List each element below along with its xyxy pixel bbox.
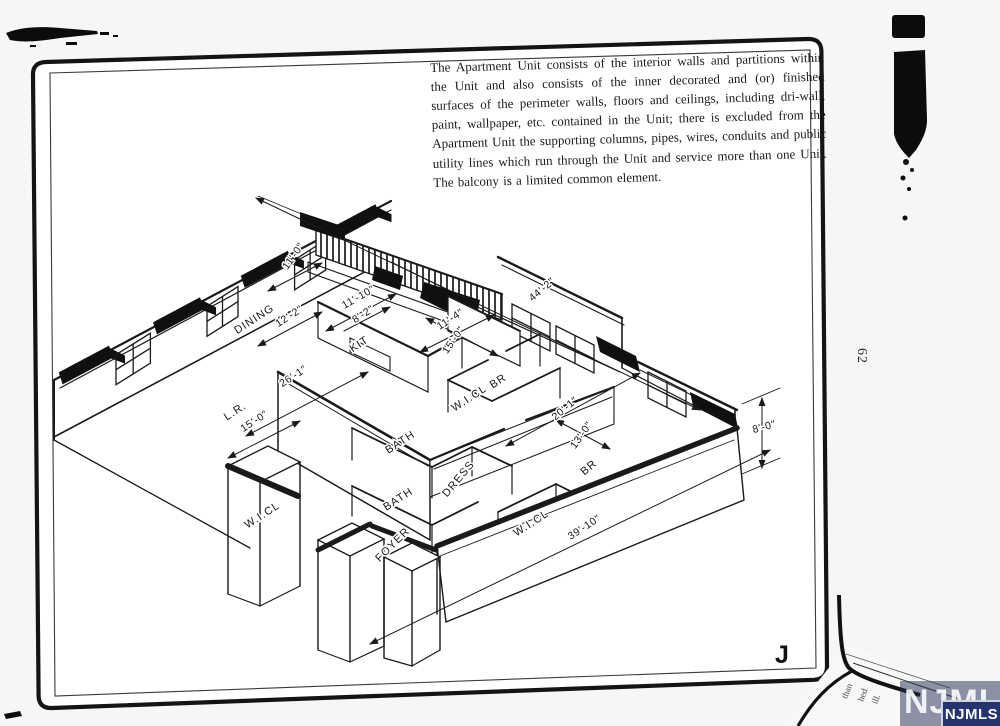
njmls-badge-text: NJMLS bbox=[945, 706, 998, 723]
figure-label: J bbox=[775, 641, 789, 669]
page-number: 62 bbox=[853, 348, 869, 364]
scan-smudge-top-left bbox=[6, 27, 118, 47]
scanned-page: DINING KIT L.R. BR W.I.CL BATH BATH DRES… bbox=[0, 0, 1000, 726]
description-paragraph: The Apartment Unit consists of the inter… bbox=[430, 48, 827, 192]
njmls-badge: NJMLS bbox=[941, 700, 1000, 726]
scan-smudge-right-edge bbox=[892, 15, 927, 221]
scan-smudge-bottom-left bbox=[4, 711, 22, 719]
